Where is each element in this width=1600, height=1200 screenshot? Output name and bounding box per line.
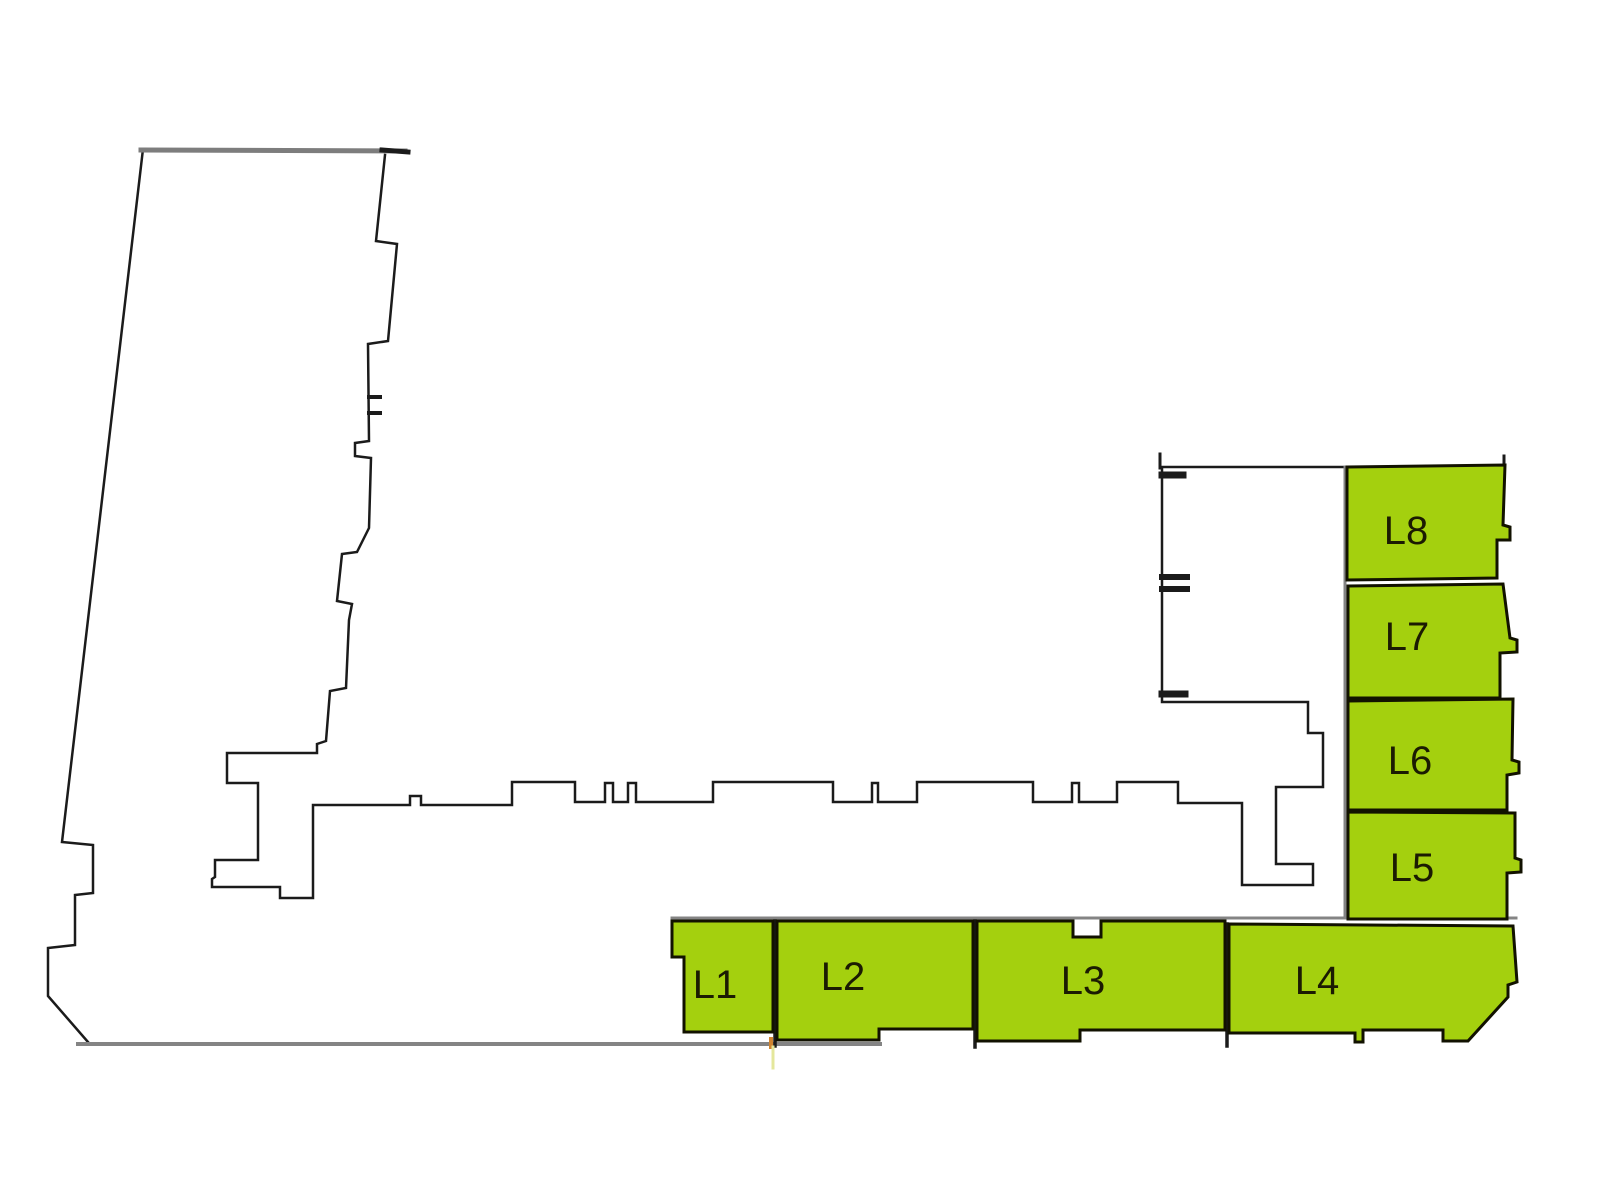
building-top-edge [141,150,405,151]
unit-L8[interactable] [1347,465,1510,580]
site-left-edge [48,149,143,1042]
unit-L7[interactable] [1348,584,1517,698]
unit-L4[interactable] [1229,924,1517,1042]
unit-L2[interactable] [777,921,973,1040]
unit-L3[interactable] [977,921,1225,1041]
unit-L6[interactable] [1348,699,1519,810]
building-outline [212,155,1347,898]
unit-L5[interactable] [1348,812,1521,919]
unit-L1[interactable] [672,921,773,1032]
floorplan-svg: L1L2L3L4L5L6L7L8 [0,0,1600,1200]
floorplan-canvas: L1L2L3L4L5L6L7L8 [0,0,1600,1200]
building-top-edge-cap [382,150,408,152]
units-layer: L1L2L3L4L5L6L7L8 [672,465,1521,1042]
